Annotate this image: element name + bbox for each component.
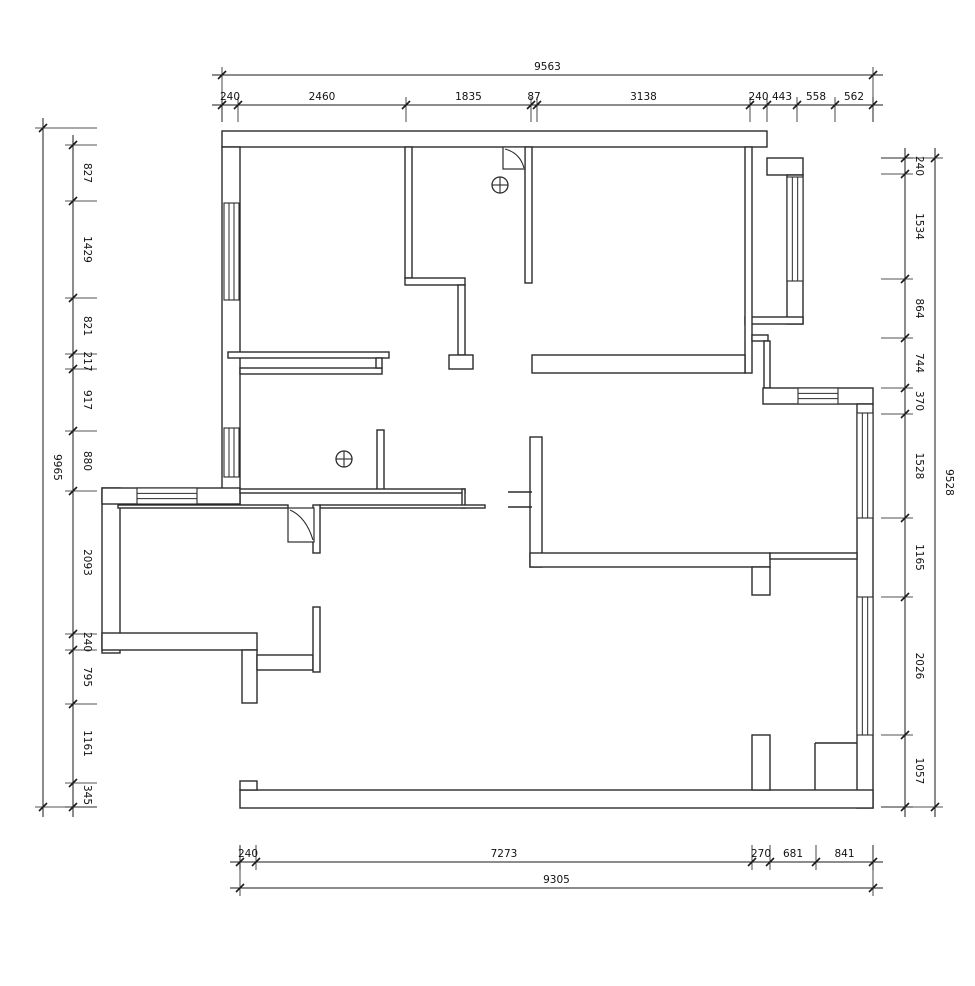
dim-label: 240 [238, 848, 258, 860]
dim-label: 1161 [81, 730, 93, 757]
nook-wall-h [257, 655, 313, 670]
right-step-wall-h [752, 335, 768, 341]
bottom-wall [240, 790, 873, 808]
dim-label: 827 [81, 163, 93, 183]
dim-label: 443 [772, 91, 792, 103]
window-right-lower [857, 597, 873, 735]
corridor-wall-lower-left [118, 505, 288, 508]
dim-label: 2093 [81, 549, 93, 576]
dim-label: 9563 [534, 61, 561, 73]
living-south-wall [530, 553, 770, 567]
dim-label: 3138 [630, 91, 657, 103]
dim-label: 240 [748, 91, 768, 103]
midroom-stub-wall [458, 285, 465, 355]
dim-label: 240 [81, 632, 93, 652]
dim-label: 2026 [913, 653, 925, 680]
floor-plan-page: 9563240246018358731382404435585622407273… [0, 0, 975, 986]
midroom-stub-foot [449, 355, 473, 369]
dim-label: 744 [913, 353, 925, 373]
living-south-pier [752, 567, 770, 595]
window-right-top [798, 388, 838, 404]
dim-label: 9528 [943, 469, 955, 496]
living-east-thin-wall [770, 553, 857, 559]
midroom-east-wall [525, 147, 532, 283]
dim-label: 1057 [913, 758, 925, 785]
bedroom2-south-wall [532, 355, 745, 373]
window-left-upper [224, 203, 239, 300]
wing-west-wall [102, 488, 120, 653]
dim-label: 795 [81, 667, 93, 687]
dim-label: 864 [913, 298, 925, 318]
dim-label: 240 [220, 91, 240, 103]
bedroom1-south-connector [376, 358, 382, 368]
right-step-wall-v [764, 341, 770, 388]
dim-label: 841 [834, 848, 854, 860]
corridor-wall-upper [240, 489, 465, 493]
dim-label: 681 [783, 848, 803, 860]
top-wall [222, 131, 767, 147]
dim-label: 7273 [491, 848, 518, 860]
dim-label: 217 [81, 351, 93, 371]
dim-label: 1165 [913, 544, 925, 571]
wing-bottom-wall [102, 633, 257, 650]
window-left-lower [224, 428, 239, 477]
bay-top-wall [767, 158, 803, 175]
bedroom1-south-wall-a [228, 352, 389, 358]
dim-label: 1534 [913, 213, 925, 240]
dim-label: 2460 [309, 91, 336, 103]
living-west-wall [530, 437, 542, 567]
dim-label: 821 [81, 316, 93, 336]
bottom-pier [752, 735, 770, 790]
nook-wall-v [313, 607, 320, 672]
dim-label: 9305 [543, 874, 570, 886]
dim-label: 562 [844, 91, 864, 103]
dim-label: 917 [81, 390, 93, 410]
bay-bottom-wall [745, 317, 803, 324]
bedroom1-east-wall [405, 147, 412, 278]
hall-stub-wall [377, 430, 384, 490]
dim-label: 270 [751, 848, 771, 860]
dim-label: 558 [806, 91, 826, 103]
corridor-wall-lower-right [320, 505, 485, 508]
dim-label: 1528 [913, 453, 925, 480]
bedroom2-right-wall [745, 147, 752, 373]
window-bay-right [787, 177, 803, 281]
floor-plan: 9563240246018358731382404435585622407273… [0, 0, 975, 986]
bedroom1-south-wall-b [240, 368, 382, 374]
window-wing-top [137, 488, 197, 504]
wing-pier [242, 650, 257, 703]
dim-label: 9965 [51, 454, 63, 481]
door-midroom [503, 147, 525, 169]
dim-label: 240 [913, 156, 925, 176]
dim-label: 370 [913, 391, 925, 411]
midroom-south-wall [405, 278, 465, 285]
dim-label: 1429 [81, 236, 93, 263]
dim-label: 880 [81, 451, 93, 471]
dim-label: 87 [527, 91, 540, 103]
dim-label: 345 [81, 785, 93, 805]
window-right-upper [857, 413, 873, 518]
bottom-wall-step [240, 781, 257, 790]
dim-label: 1835 [455, 91, 482, 103]
door-corridor [288, 508, 314, 542]
